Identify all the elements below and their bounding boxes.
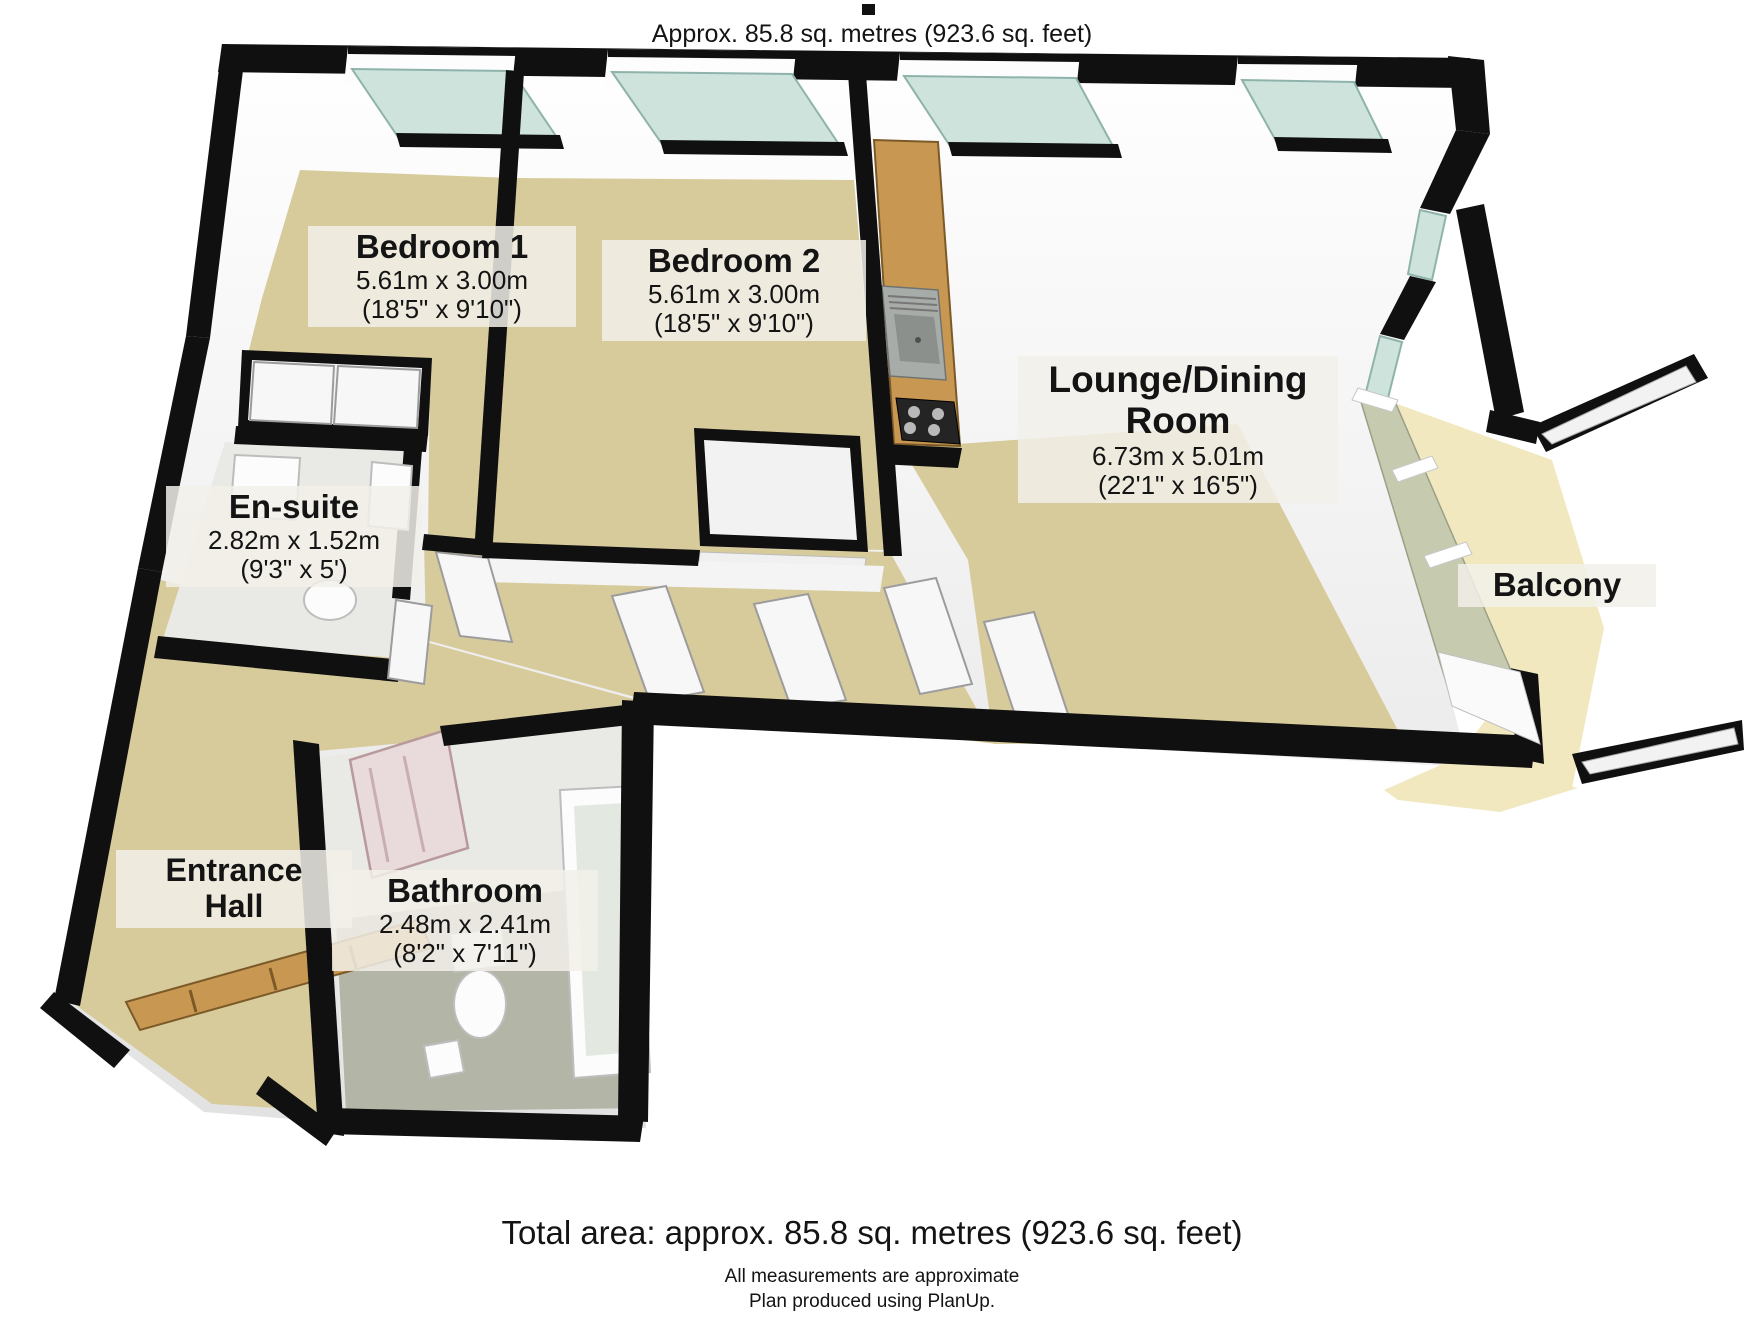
produced-by-note: Plan produced using PlanUp. [0,1291,1744,1313]
ensuite-door [388,600,432,684]
bathroom-name: Bathroom [340,873,590,910]
bathroom-size-metric: 2.48m x 2.41m [340,910,590,939]
bathroom-east-wall [618,700,654,1122]
floorplan-drawing [0,0,1744,1328]
area-caption: Approx. 85.8 sq. metres (923.6 sq. feet) [0,20,1744,49]
bedroom1-size-metric: 5.61m x 3.00m [316,266,568,295]
lounge-label: Lounge/Dining Room 6.73m x 5.01m (22'1" … [1018,356,1338,503]
balcony-door-upper [1532,354,1708,452]
balcony-door-lower [1572,720,1744,784]
bedroom2-size-imperial: (18'5" x 9'10") [610,309,858,338]
plan-marker-dot [862,4,875,15]
kitchen-hob [896,398,960,444]
balcony-label: Balcony [1458,564,1656,607]
bathroom-label: Bathroom 2.48m x 2.41m (8'2" x 7'11") [332,870,598,971]
bedroom1-size-imperial: (18'5" x 9'10") [316,295,568,324]
floorplan-page: Approx. 85.8 sq. metres (923.6 sq. feet)… [0,0,1744,1328]
kitchen-sink [882,286,946,380]
entrance-name-line2: Hall [124,889,344,925]
lounge-size-metric: 6.73m x 5.01m [1026,442,1330,471]
bedroom2-name: Bedroom 2 [610,243,858,280]
bedroom1-name: Bedroom 1 [316,229,568,266]
ensuite-size-metric: 2.82m x 1.52m [174,526,414,555]
bedroom2-label: Bedroom 2 5.61m x 3.00m (18'5" x 9'10") [602,240,866,341]
bathroom-size-imperial: (8'2" x 7'11") [340,939,590,968]
ensuite-label: En-suite 2.82m x 1.52m (9'3" x 5') [166,486,422,587]
toilet-bowl [454,970,506,1038]
bathroom-sink [424,1040,464,1078]
balcony-side-wall [1456,204,1524,420]
bedroom1-label: Bedroom 1 5.61m x 3.00m (18'5" x 9'10") [308,226,576,327]
balcony-name: Balcony [1466,567,1648,604]
bedroom2-size-metric: 5.61m x 3.00m [610,280,858,309]
ensuite-size-imperial: (9'3" x 5') [174,555,414,584]
bedroom1-closet [238,350,432,436]
measurements-note: All measurements are approximate [0,1266,1744,1288]
lounge-size-imperial: (22'1" x 16'5") [1026,471,1330,500]
entrance-name-line1: Entrance [124,853,344,889]
total-area-text: Total area: approx. 85.8 sq. metres (923… [0,1214,1744,1252]
ensuite-name: En-suite [174,489,414,526]
lounge-name-line1: Lounge/Dining [1026,359,1330,400]
entrance-hall-label: Entrance Hall [116,850,352,928]
lounge-name-line2: Room [1026,400,1330,441]
